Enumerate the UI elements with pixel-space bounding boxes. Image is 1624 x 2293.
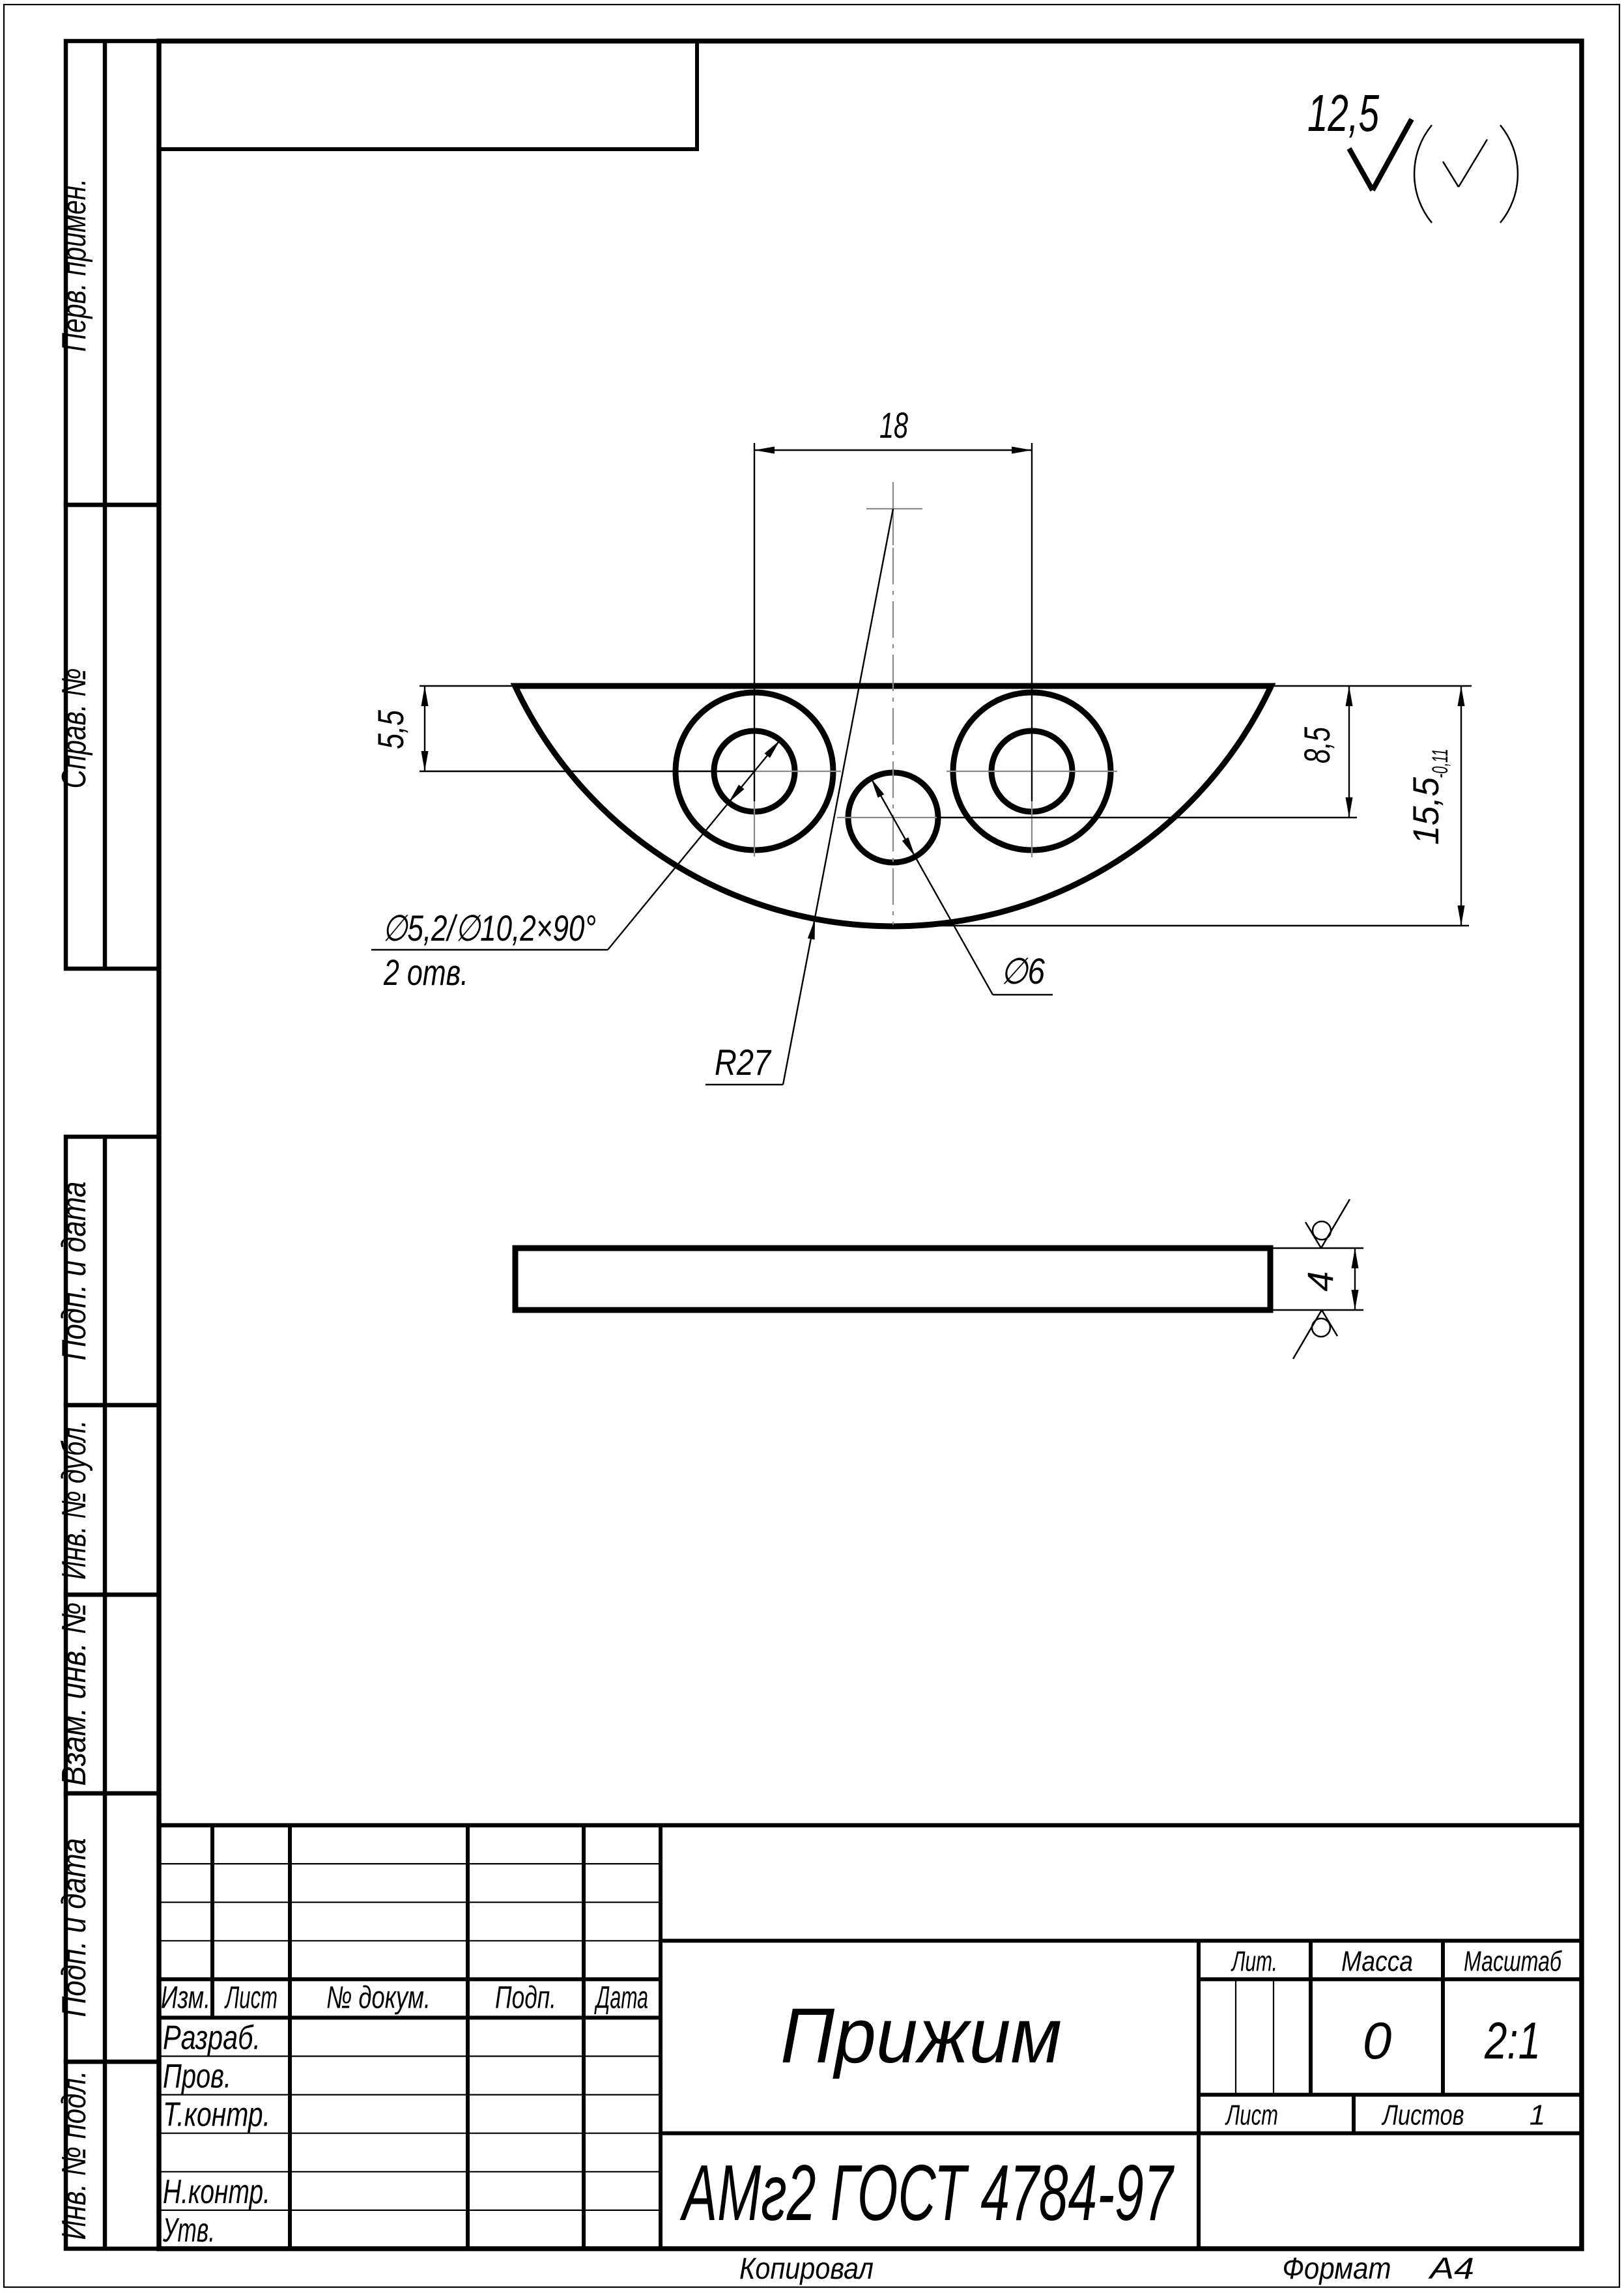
svg-text:18: 18 (879, 405, 908, 446)
svg-text:Подп. и дата: Подп. и дата (55, 1182, 93, 1361)
svg-text:Н.контр.: Н.контр. (163, 2173, 270, 2211)
svg-text:Взам. инв. №: Взам. инв. № (55, 1602, 93, 1786)
svg-text:Масштаб: Масштаб (1464, 1945, 1563, 1977)
svg-text:Масса: Масса (1341, 1945, 1413, 1977)
svg-text:Лист: Лист (1225, 2100, 1278, 2131)
svg-text:Перв. примен.: Перв. примен. (55, 178, 93, 352)
svg-text:Прижим: Прижим (780, 1992, 1062, 2079)
svg-text:1: 1 (1530, 2100, 1545, 2131)
svg-text:Т.контр.: Т.контр. (163, 2096, 270, 2134)
svg-text:АМг2 ГОСТ 4784-97: АМг2 ГОСТ 4784-97 (679, 2148, 1175, 2237)
svg-text:Лит.: Лит. (1231, 1945, 1277, 1977)
svg-text:Подп. и дата: Подп. и дата (55, 1838, 93, 2017)
svg-text:R27: R27 (715, 1042, 772, 1083)
svg-text:2 отв.: 2 отв. (383, 952, 468, 993)
svg-text:15,5: 15,5 (1405, 776, 1446, 845)
svg-text:Инв. № подл.: Инв. № подл. (55, 2071, 93, 2240)
svg-text:Справ. №: Справ. № (55, 668, 93, 789)
svg-text:5,5: 5,5 (370, 709, 411, 749)
svg-text:8,5: 8,5 (1296, 726, 1337, 763)
svg-text:4: 4 (1300, 1271, 1341, 1291)
svg-text:№ докум.: № докум. (326, 1980, 431, 2015)
svg-text:12,5: 12,5 (1307, 84, 1379, 142)
svg-text:-0,11: -0,11 (1428, 749, 1453, 778)
svg-text:∅5,2/∅10,2×90°: ∅5,2/∅10,2×90° (382, 907, 596, 948)
svg-text:∅6: ∅6 (1001, 950, 1046, 991)
svg-text:А4: А4 (1427, 2251, 1474, 2285)
svg-text:0: 0 (1363, 2012, 1392, 2070)
svg-text:Лист: Лист (224, 1980, 278, 2015)
svg-text:Подп.: Подп. (495, 1980, 556, 2015)
svg-text:Пров.: Пров. (163, 2058, 231, 2096)
svg-text:Листов: Листов (1381, 2100, 1464, 2131)
svg-text:Дата: Дата (594, 1980, 648, 2015)
svg-text:Формат: Формат (1283, 2251, 1391, 2285)
svg-text:Инв. № дубл.: Инв. № дубл. (55, 1420, 93, 1580)
svg-text:Изм.: Изм. (161, 1980, 210, 2015)
svg-text:Разраб.: Разраб. (163, 2019, 261, 2057)
svg-text:2:1: 2:1 (1484, 2012, 1541, 2070)
svg-text:Утв.: Утв. (162, 2212, 215, 2249)
svg-text:Копировал: Копировал (739, 2251, 874, 2285)
